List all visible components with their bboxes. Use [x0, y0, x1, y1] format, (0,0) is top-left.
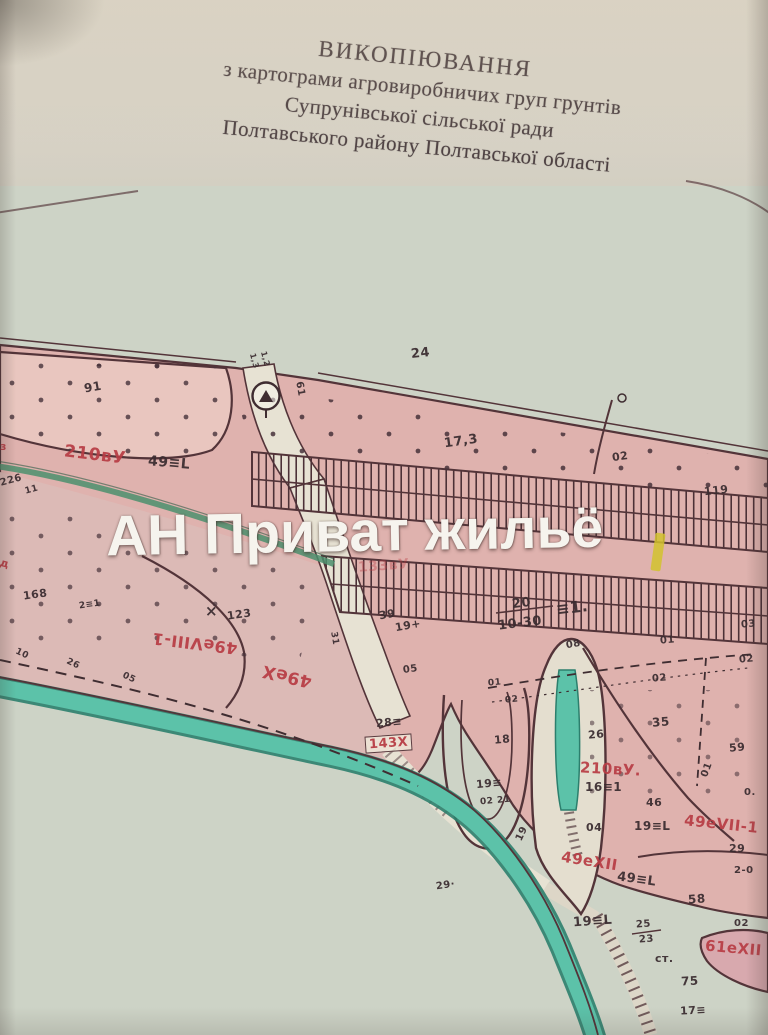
map-label: 46: [646, 797, 662, 808]
map-label: 17≡: [680, 1004, 707, 1016]
map-label: 02: [739, 654, 755, 665]
map-label: 04: [586, 822, 602, 833]
map-label: 19≡L: [634, 820, 670, 832]
map-label: 02 21: [480, 796, 511, 808]
map-label: 01: [700, 761, 715, 778]
map-label: 24: [410, 346, 430, 361]
map-label: 10-30: [497, 614, 542, 632]
map-label: 01: [488, 678, 502, 688]
watermark-text: АН Приват жильё: [105, 495, 603, 570]
map-label: 35: [652, 715, 671, 728]
map-label: 05: [121, 672, 137, 686]
map-label: 58: [688, 892, 706, 905]
map-label: 20: [511, 596, 532, 611]
map-label: 26: [588, 728, 605, 740]
map-label: 210вУ.: [580, 760, 642, 778]
map-label: 02: [734, 919, 749, 929]
map-label: 02: [505, 695, 519, 705]
map-label: 61еХІІ: [704, 939, 762, 959]
map-label: 18: [494, 733, 511, 745]
map-label: 29: [729, 843, 745, 854]
map-label: ×: [205, 604, 218, 619]
map-label: 19≡: [476, 777, 503, 790]
map-label: 123: [226, 607, 252, 621]
map-label: 49еVII-1: [683, 813, 759, 836]
map-label: д: [0, 557, 11, 570]
map-label: 23: [639, 934, 655, 945]
map-label: 11: [24, 484, 39, 496]
map-label: 10: [14, 648, 30, 662]
map-label: з: [0, 441, 7, 452]
map-label: 02: [652, 673, 668, 684]
map-label: 28≡: [376, 716, 403, 729]
map-label: ст.: [655, 953, 674, 964]
map-label: 39: [378, 608, 396, 622]
map-label: 31: [328, 631, 339, 646]
scanned-map-page: ВИКОПІЮВАННЯ з картограми агровиробничих…: [0, 0, 768, 1035]
map-label: 49еХІІ: [560, 850, 618, 874]
map-label: 1,3: [248, 352, 260, 369]
map-label: 26: [65, 658, 81, 672]
map-label: 2-0: [734, 866, 754, 876]
map-label: 02: [611, 450, 629, 463]
map-label: 119: [703, 484, 728, 497]
map-label: 17,3: [443, 433, 479, 451]
map-label: 1,2: [259, 350, 271, 367]
map-label: 05: [402, 664, 418, 676]
map-label: 16≡1: [585, 781, 622, 793]
map-label: 19≡L: [573, 914, 613, 930]
map-label: 91: [83, 380, 103, 395]
map-label: 19: [515, 825, 530, 843]
map-label: 59: [729, 741, 746, 753]
map-label: 2≡1: [78, 600, 101, 612]
map-label: 49еХ: [261, 662, 314, 690]
map-label: 143Х: [364, 733, 412, 753]
map-label: 01: [660, 635, 676, 646]
map-label: 29·: [435, 880, 455, 893]
map-label: 49≡L: [616, 870, 657, 888]
map-label: 0.: [744, 788, 756, 798]
map-label: 61: [293, 381, 305, 397]
map-label: 03: [741, 619, 757, 630]
map-label: 168: [22, 587, 48, 601]
map-label: 210вУ: [63, 443, 126, 467]
map-label: 226: [0, 473, 23, 488]
map-label: 49еVIII-1: [151, 630, 238, 656]
map-label: ≡1.: [555, 598, 589, 618]
map-label: 19+: [394, 618, 422, 633]
map-label: 49≡L: [147, 454, 190, 472]
map-label: 08: [565, 639, 581, 651]
map-label: 75: [681, 975, 699, 988]
map-label: 25: [636, 919, 652, 930]
